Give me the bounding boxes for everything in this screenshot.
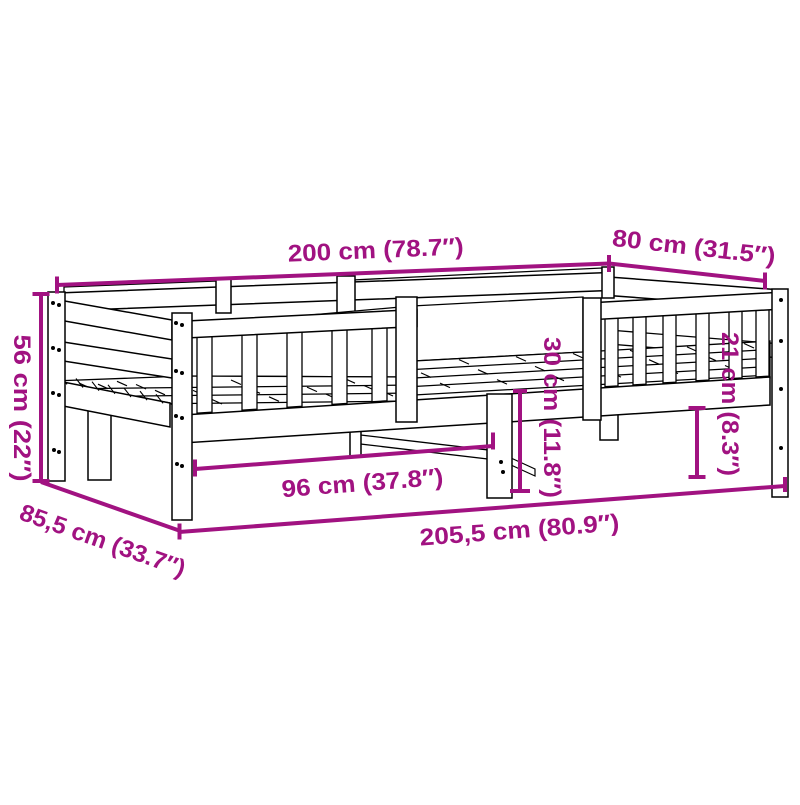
svg-text:21 cm (8.3″): 21 cm (8.3″)	[716, 332, 743, 476]
svg-text:30 cm (11.8″): 30 cm (11.8″)	[538, 337, 565, 498]
svg-text:56 cm (22″): 56 cm (22″)	[8, 335, 35, 482]
